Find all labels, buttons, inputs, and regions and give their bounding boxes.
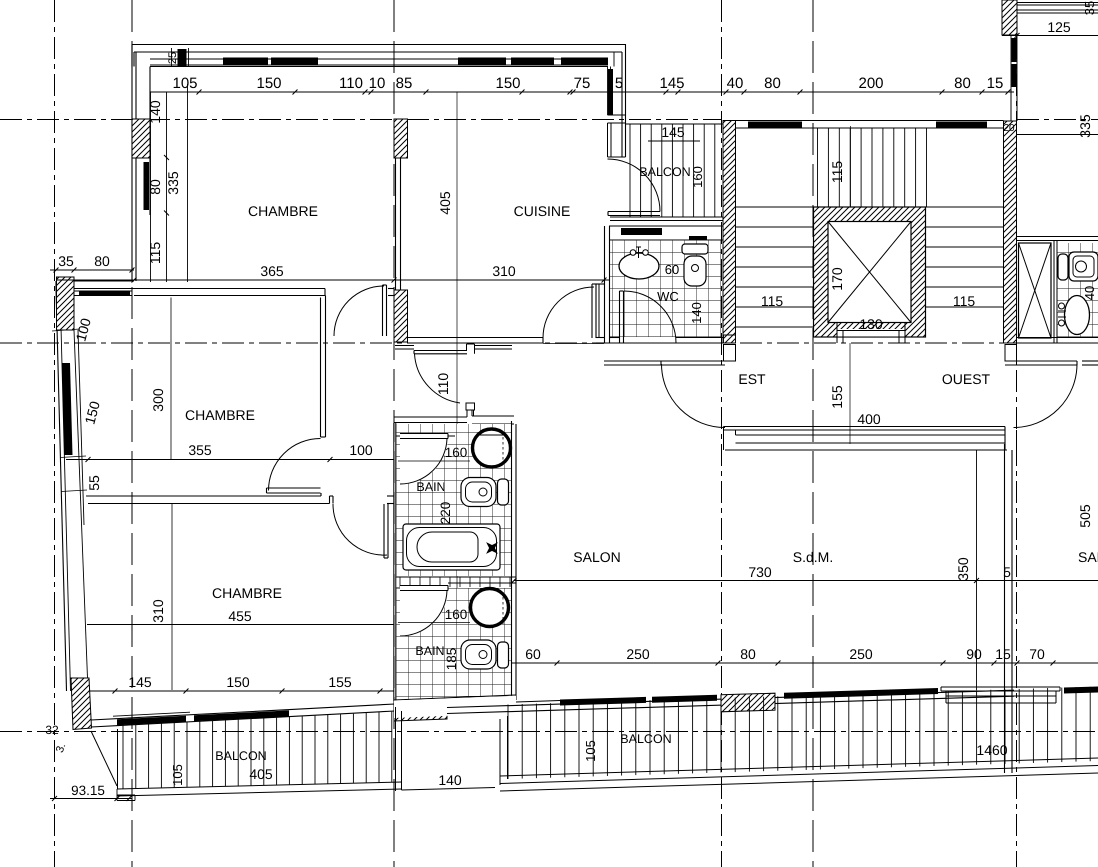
svg-text:80: 80	[740, 646, 756, 662]
svg-text:70: 70	[1029, 646, 1045, 662]
svg-text:100: 100	[349, 442, 373, 458]
svg-text:185: 185	[444, 648, 459, 671]
svg-text:130: 130	[859, 316, 883, 332]
svg-text:200: 200	[858, 75, 883, 92]
svg-text:310: 310	[492, 263, 516, 279]
svg-text:335: 335	[1077, 114, 1093, 138]
svg-text:405: 405	[249, 766, 273, 782]
svg-text:40: 40	[727, 75, 744, 92]
svg-text:505: 505	[1077, 504, 1093, 528]
svg-text:32: 32	[45, 723, 59, 737]
svg-text:BALCON: BALCON	[620, 732, 671, 746]
svg-text:5: 5	[1003, 564, 1011, 580]
svg-text:115: 115	[953, 293, 976, 309]
svg-text:35: 35	[1082, 1, 1097, 15]
svg-text:25: 25	[167, 52, 179, 64]
svg-text:20: 20	[1003, 123, 1015, 134]
svg-text:145: 145	[128, 674, 152, 690]
svg-text:155: 155	[829, 385, 845, 409]
svg-text:110: 110	[339, 75, 363, 92]
svg-text:BALCON: BALCON	[215, 749, 266, 763]
svg-text:125: 125	[1047, 19, 1071, 35]
svg-text:150: 150	[256, 75, 281, 92]
svg-text:55: 55	[86, 475, 102, 491]
svg-text:S.d.M.: S.d.M.	[793, 549, 833, 565]
svg-text:105: 105	[583, 740, 598, 762]
svg-text:350: 350	[955, 557, 971, 581]
svg-text:155: 155	[328, 674, 352, 690]
svg-text:140: 140	[438, 772, 462, 788]
svg-text:35: 35	[58, 253, 74, 269]
svg-text:140: 140	[689, 302, 704, 324]
svg-text:15: 15	[995, 646, 1011, 662]
svg-text:170: 170	[829, 267, 845, 291]
svg-text:355: 355	[188, 442, 212, 458]
svg-text:80: 80	[147, 179, 163, 195]
svg-text:110: 110	[435, 373, 451, 396]
svg-text:OUEST: OUEST	[942, 371, 991, 387]
svg-text:40: 40	[1082, 286, 1097, 300]
svg-text:160: 160	[445, 445, 468, 460]
svg-text:75: 75	[574, 75, 591, 92]
svg-text:335: 335	[165, 171, 181, 195]
svg-text:60: 60	[525, 646, 541, 662]
svg-text:400: 400	[857, 411, 881, 427]
svg-text:BALCON: BALCON	[639, 165, 690, 179]
svg-text:455: 455	[228, 608, 252, 624]
svg-text:160: 160	[690, 166, 705, 188]
svg-text:80: 80	[954, 75, 971, 92]
svg-text:730: 730	[748, 564, 772, 580]
svg-text:145: 145	[659, 75, 684, 92]
svg-text:250: 250	[849, 646, 873, 662]
svg-text:1460: 1460	[976, 742, 1007, 758]
svg-text:SALON: SALON	[1078, 549, 1098, 565]
svg-text:150: 150	[226, 674, 250, 690]
svg-text:105: 105	[172, 75, 197, 92]
svg-text:BAIN: BAIN	[416, 480, 445, 494]
svg-text:5: 5	[615, 75, 623, 92]
svg-text:150: 150	[495, 75, 520, 92]
svg-text:CHAMBRE: CHAMBRE	[185, 407, 255, 423]
svg-text:SALON: SALON	[573, 549, 620, 565]
svg-text:BAIN: BAIN	[415, 644, 444, 658]
svg-text:160: 160	[445, 607, 468, 622]
svg-text:80: 80	[764, 75, 781, 92]
svg-text:80: 80	[94, 253, 110, 269]
svg-text:115: 115	[761, 293, 784, 309]
svg-text:145: 145	[661, 124, 685, 140]
svg-text:WC: WC	[657, 289, 679, 304]
svg-text:CUISINE: CUISINE	[514, 203, 571, 219]
svg-text:15: 15	[987, 75, 1004, 92]
svg-text:CHAMBRE: CHAMBRE	[212, 585, 282, 601]
svg-text:EST: EST	[738, 371, 766, 387]
svg-text:365: 365	[260, 263, 284, 279]
svg-text:115: 115	[147, 242, 163, 265]
svg-text:85: 85	[396, 75, 413, 92]
svg-text:105: 105	[170, 764, 185, 786]
svg-text:310: 310	[150, 599, 166, 623]
svg-text:250: 250	[626, 646, 650, 662]
svg-text:220: 220	[438, 502, 453, 525]
svg-text:93.15: 93.15	[71, 783, 105, 798]
svg-text:140: 140	[147, 100, 163, 124]
svg-text:90: 90	[966, 646, 982, 662]
svg-text:CHAMBRE: CHAMBRE	[248, 203, 318, 219]
svg-text:115: 115	[829, 161, 845, 184]
svg-text:300: 300	[150, 388, 166, 412]
svg-text:60: 60	[665, 262, 679, 277]
svg-text:405: 405	[437, 191, 453, 215]
svg-text:10: 10	[369, 75, 386, 92]
